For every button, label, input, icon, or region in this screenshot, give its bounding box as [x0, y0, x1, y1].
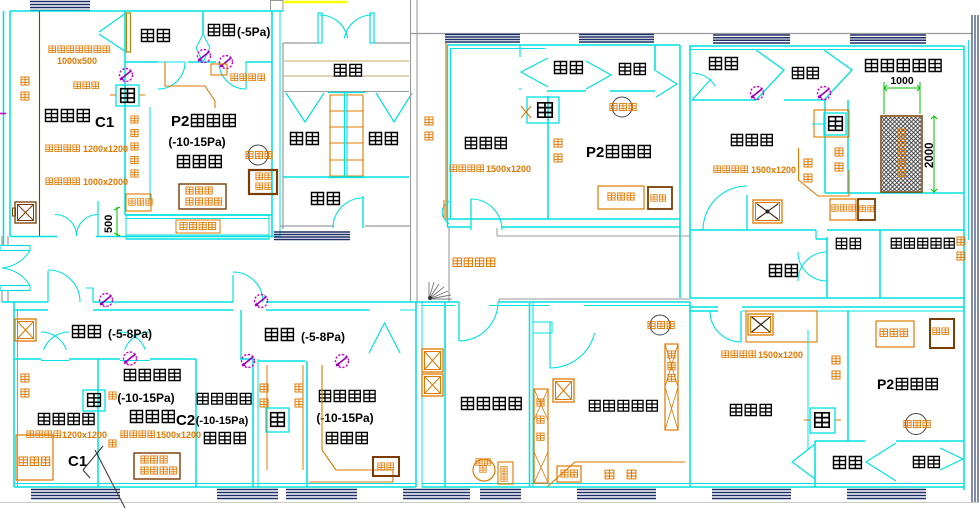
- svg-text:500: 500: [103, 215, 115, 233]
- svg-text:1500x1200: 1500x1200: [156, 430, 201, 440]
- svg-text:1500x1200: 1500x1200: [486, 164, 531, 174]
- svg-text:1200x1200: 1200x1200: [62, 430, 107, 440]
- svg-text:(-10-15Pa): (-10-15Pa): [196, 415, 249, 427]
- svg-text:(-5Pa): (-5Pa): [237, 25, 270, 39]
- svg-text:(-10-15Pa): (-10-15Pa): [168, 135, 225, 149]
- svg-text:C1: C1: [68, 453, 87, 470]
- svg-text:(-5-8Pa): (-5-8Pa): [108, 327, 152, 341]
- svg-text:C2: C2: [176, 412, 195, 429]
- svg-text:1500x1200: 1500x1200: [751, 165, 796, 175]
- svg-text:1000x500: 1000x500: [57, 56, 97, 66]
- svg-text:2000: 2000: [924, 142, 936, 168]
- svg-text:(-5-8Pa): (-5-8Pa): [301, 330, 345, 344]
- svg-text:1200x1200: 1200x1200: [83, 144, 128, 154]
- svg-text:1500x1200: 1500x1200: [758, 350, 803, 360]
- svg-text:(-10-15Pa): (-10-15Pa): [316, 411, 373, 425]
- svg-text:(-10-15Pa): (-10-15Pa): [117, 391, 174, 405]
- svg-text:P2: P2: [171, 113, 189, 130]
- svg-text:C1: C1: [95, 114, 114, 131]
- svg-text:P2: P2: [877, 376, 894, 392]
- svg-text:P2: P2: [586, 144, 604, 161]
- svg-text:1000: 1000: [890, 75, 914, 87]
- svg-text:1000x2000: 1000x2000: [83, 177, 128, 187]
